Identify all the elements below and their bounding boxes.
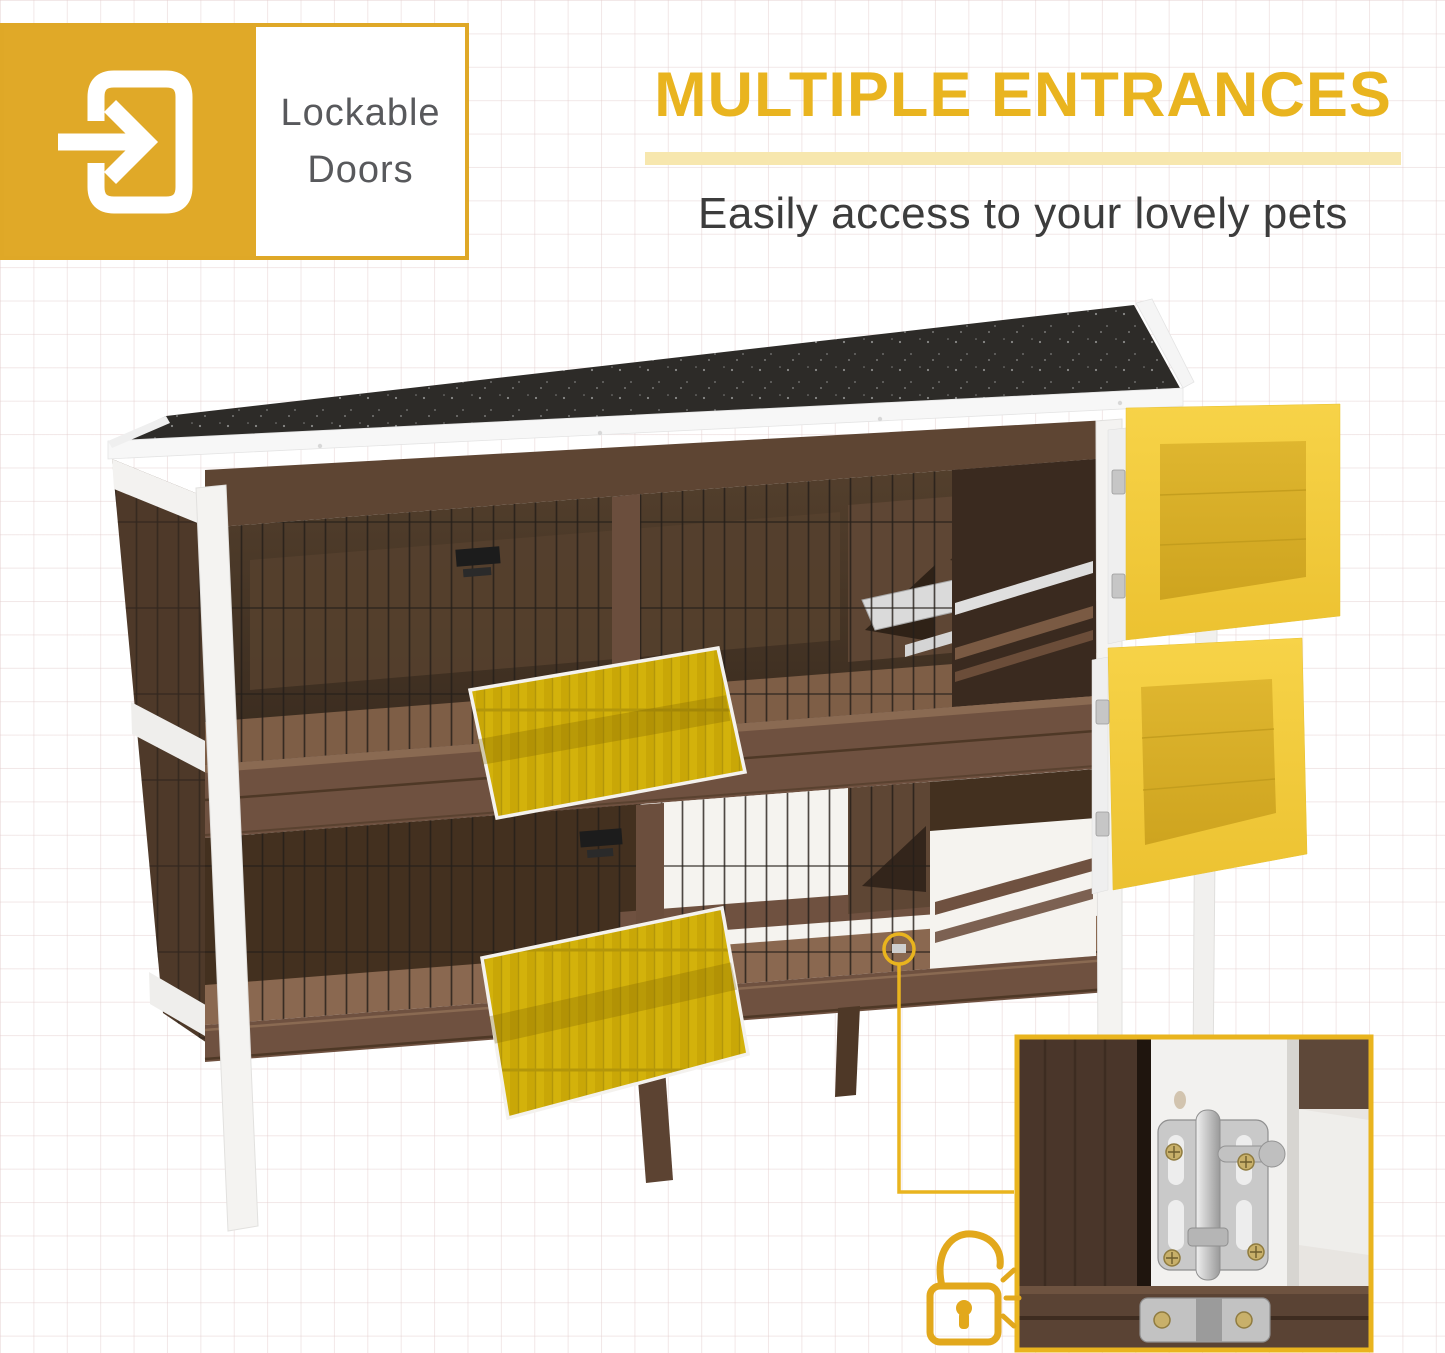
door-enter-arrow-glyph <box>50 57 210 227</box>
page-title: MULTIPLE ENTRANCES <box>628 64 1418 127</box>
hinge-icon <box>1112 574 1125 598</box>
door-hinge-strip <box>1092 657 1108 894</box>
upper-right-wood-door <box>1108 404 1340 644</box>
door-hinge-strip <box>1108 428 1126 644</box>
upper-right-doorway <box>952 459 1096 707</box>
hinge-icon <box>1112 470 1125 494</box>
hinge-icon <box>1096 812 1109 836</box>
lower-right-wood-door <box>1092 638 1307 894</box>
product-feature-image: Lockable Doors MULTIPLE ENTRANCES Easily… <box>0 0 1445 1353</box>
badge-label-line1: Lockable <box>280 85 440 142</box>
badge-label-line2: Doors <box>307 142 413 199</box>
hinge-icon <box>1096 700 1109 724</box>
headline-underline <box>645 152 1401 165</box>
lock-closeup-inset <box>1017 1037 1371 1350</box>
unlocked-padlock-icon <box>930 1234 1019 1342</box>
subtitle: Easily access to your lovely pets <box>628 189 1418 239</box>
feature-badge-label: Lockable Doors <box>256 27 465 256</box>
mid-rear-leg <box>835 1006 860 1097</box>
door-enter-arrow-icon <box>4 27 256 256</box>
lower-right-doorway <box>930 769 1096 969</box>
feature-badge: Lockable Doors <box>0 23 469 260</box>
slide-bolt-latch <box>1140 1110 1285 1342</box>
headline-block: MULTIPLE ENTRANCES Easily access to your… <box>628 64 1418 239</box>
